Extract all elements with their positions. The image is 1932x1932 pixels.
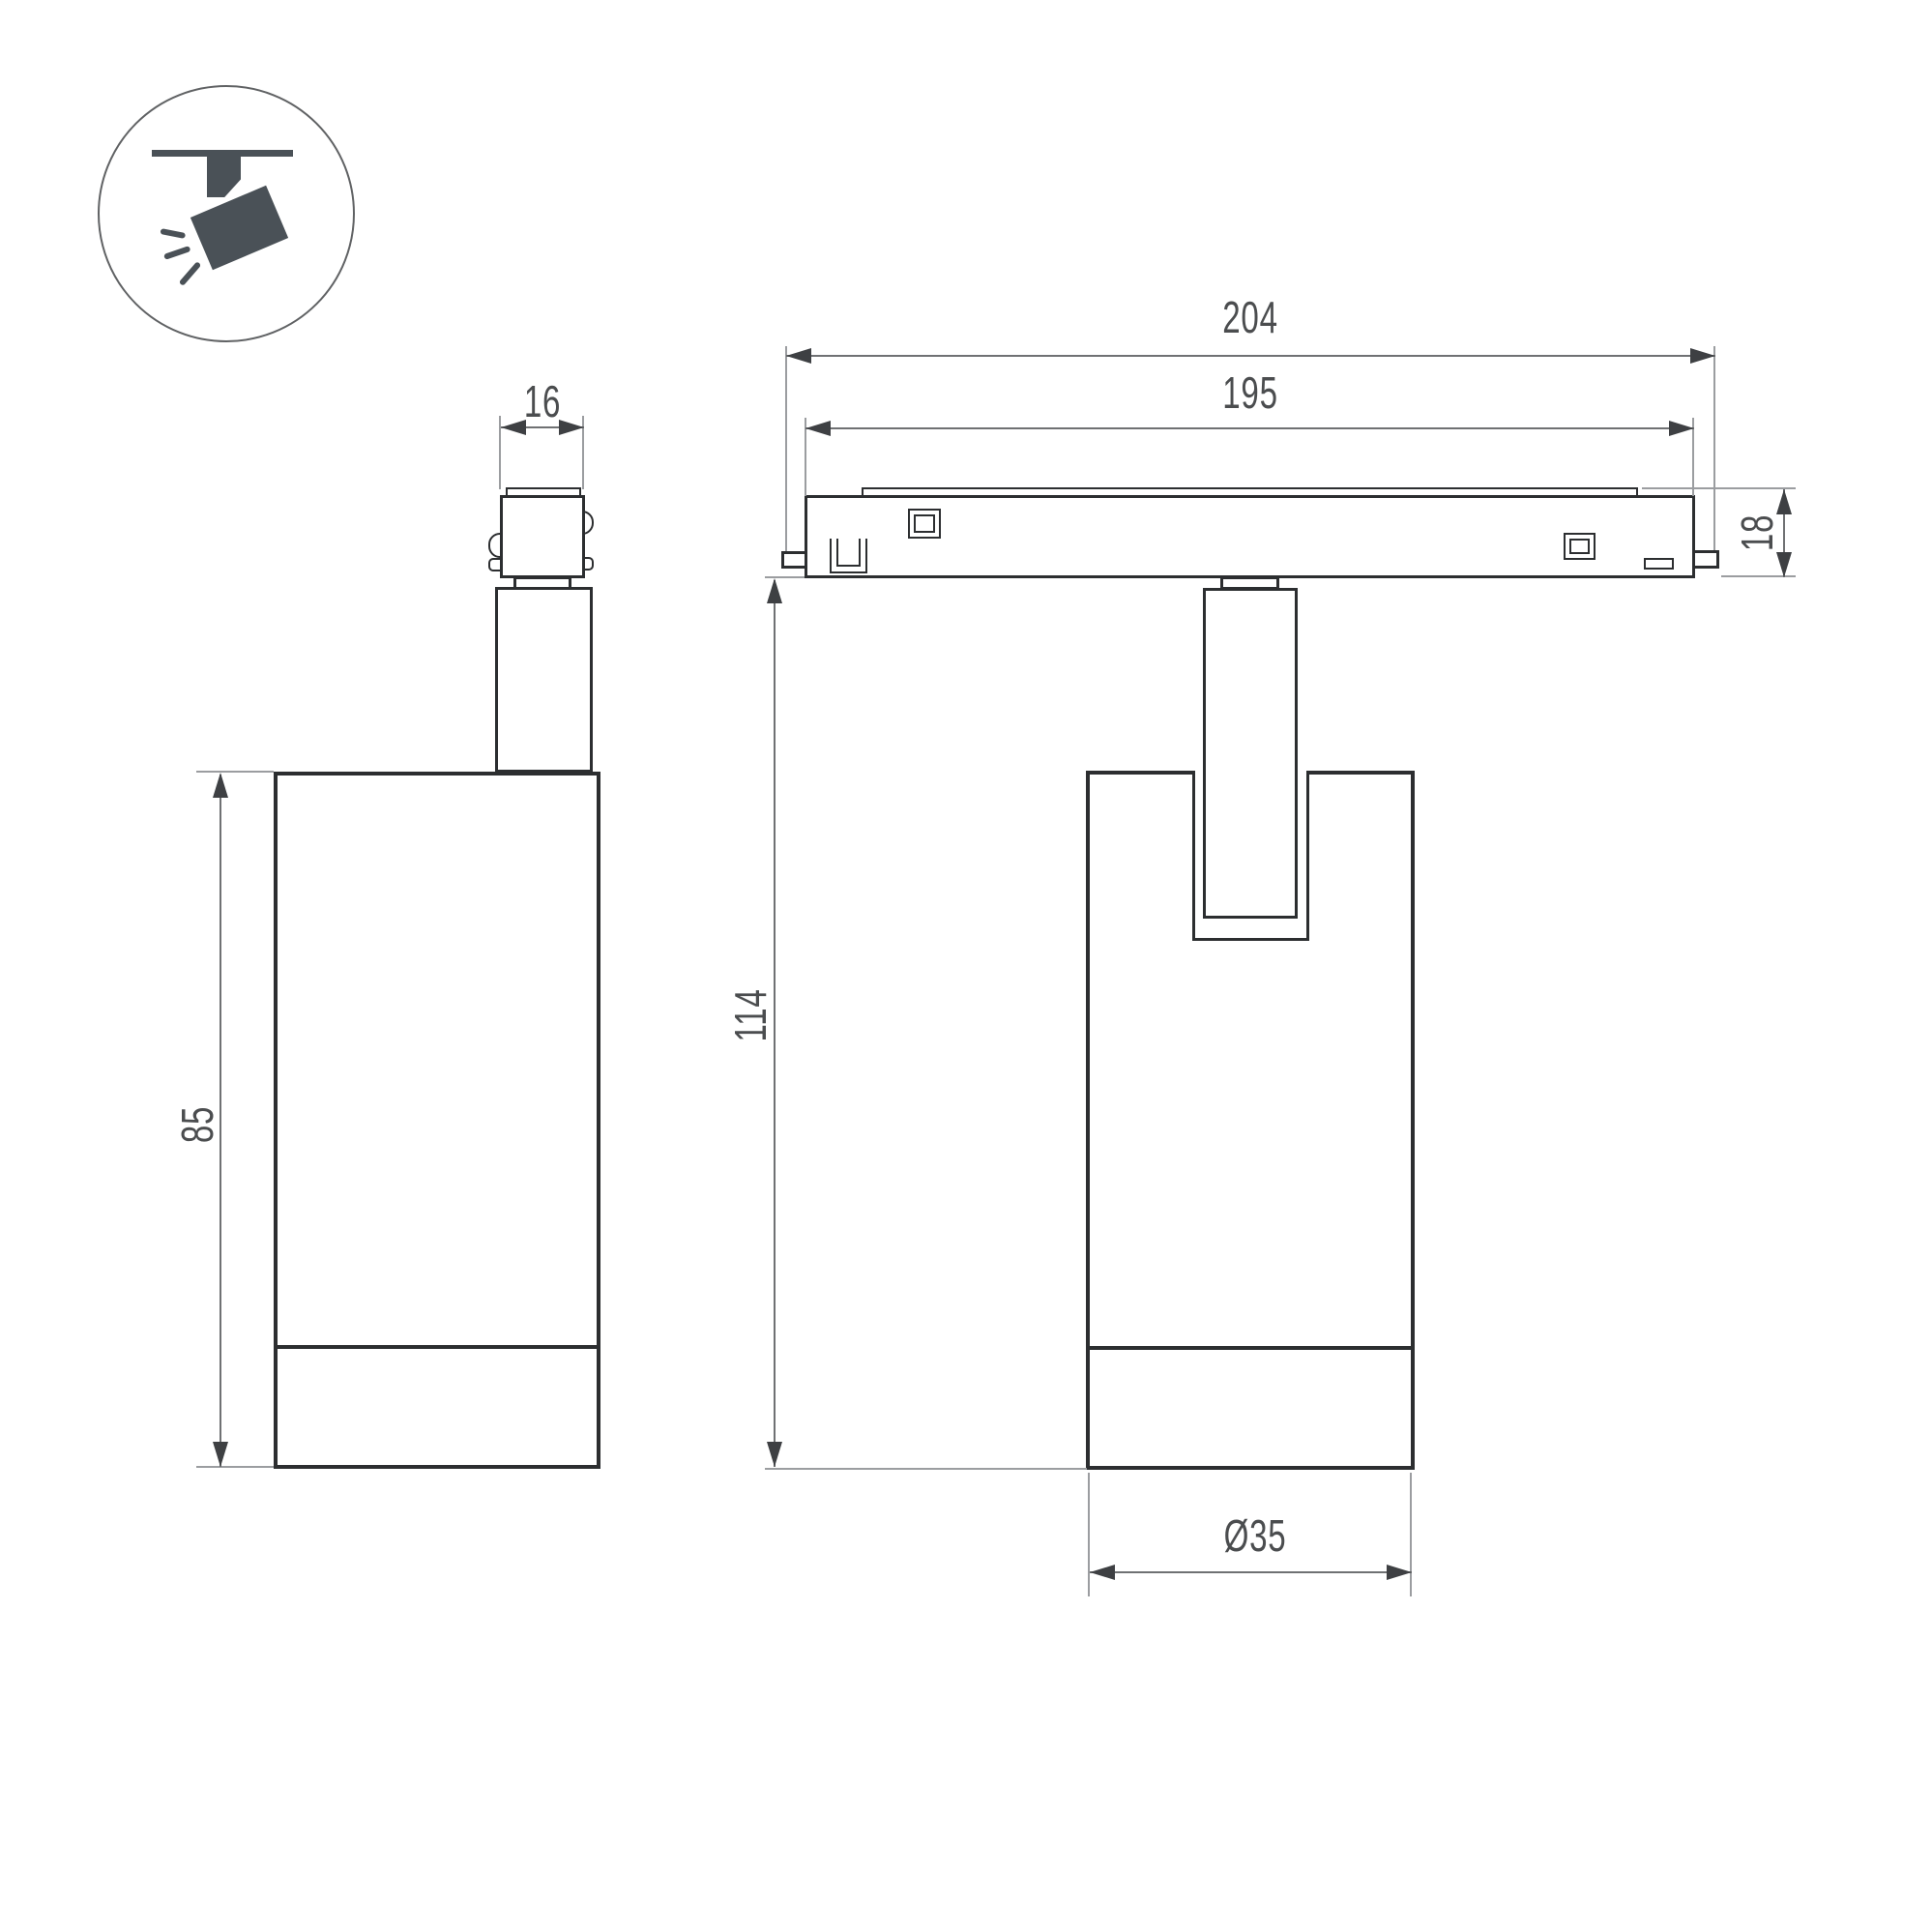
- stem-side: [495, 587, 593, 773]
- dimension-label-85: 85: [175, 1055, 220, 1194]
- track-end-tab-right: [1692, 550, 1719, 569]
- extension-line: [765, 1468, 1087, 1470]
- dimension-label-diameter: Ø35: [1186, 1513, 1325, 1558]
- track-contact-left-inner: [914, 514, 935, 533]
- body-divider-line: [277, 1345, 598, 1349]
- extension-line: [196, 1466, 274, 1468]
- arrowhead: [786, 348, 811, 364]
- track-contact-right: [1564, 533, 1595, 560]
- track-spring-clip: [830, 539, 867, 573]
- dimension-label-204: 204: [1181, 295, 1320, 339]
- track-slot-detail: [1644, 558, 1674, 570]
- dimension-label-195: 195: [1181, 370, 1320, 415]
- track-spring-clip-inner: [836, 539, 861, 567]
- magnet-strip-side: [506, 487, 581, 497]
- dimension-line-195: [805, 427, 1694, 429]
- arrowhead: [1669, 421, 1694, 436]
- track-contact-right-inner: [1569, 539, 1590, 554]
- dimension-line-35: [1090, 1571, 1412, 1573]
- slot-right-line: [1306, 771, 1309, 941]
- extension-line: [196, 771, 274, 773]
- technical-drawing-canvas: 204 195 16 18 114 85: [0, 0, 1932, 1932]
- body-divider-line: [1089, 1346, 1412, 1350]
- dimension-label-18: 18: [1735, 463, 1779, 602]
- extension-line: [1713, 346, 1715, 550]
- swivel-neck-front: [1220, 576, 1279, 590]
- slot-left-line: [1192, 771, 1195, 941]
- arrowhead: [1090, 1565, 1115, 1580]
- track-end-tab-left: [781, 551, 807, 569]
- arrowhead: [213, 773, 228, 798]
- dimension-label-114: 114: [728, 946, 773, 1085]
- slot-bottom-line: [1192, 938, 1309, 941]
- arrowhead: [767, 1442, 782, 1467]
- arrowhead: [1387, 1565, 1412, 1580]
- lamp-body-side: [274, 772, 600, 1469]
- stem-front: [1203, 588, 1298, 919]
- extension-line: [785, 346, 787, 551]
- magnet-strip-front: [862, 487, 1638, 497]
- arrowhead: [767, 578, 782, 603]
- dimension-label-16: 16: [473, 379, 612, 424]
- track-contact-left: [908, 509, 941, 539]
- track-adapter-side: [500, 495, 585, 578]
- dimension-line-204: [786, 355, 1715, 357]
- arrowhead: [1690, 348, 1715, 364]
- arrowhead: [213, 1442, 228, 1467]
- arrowhead: [805, 421, 831, 436]
